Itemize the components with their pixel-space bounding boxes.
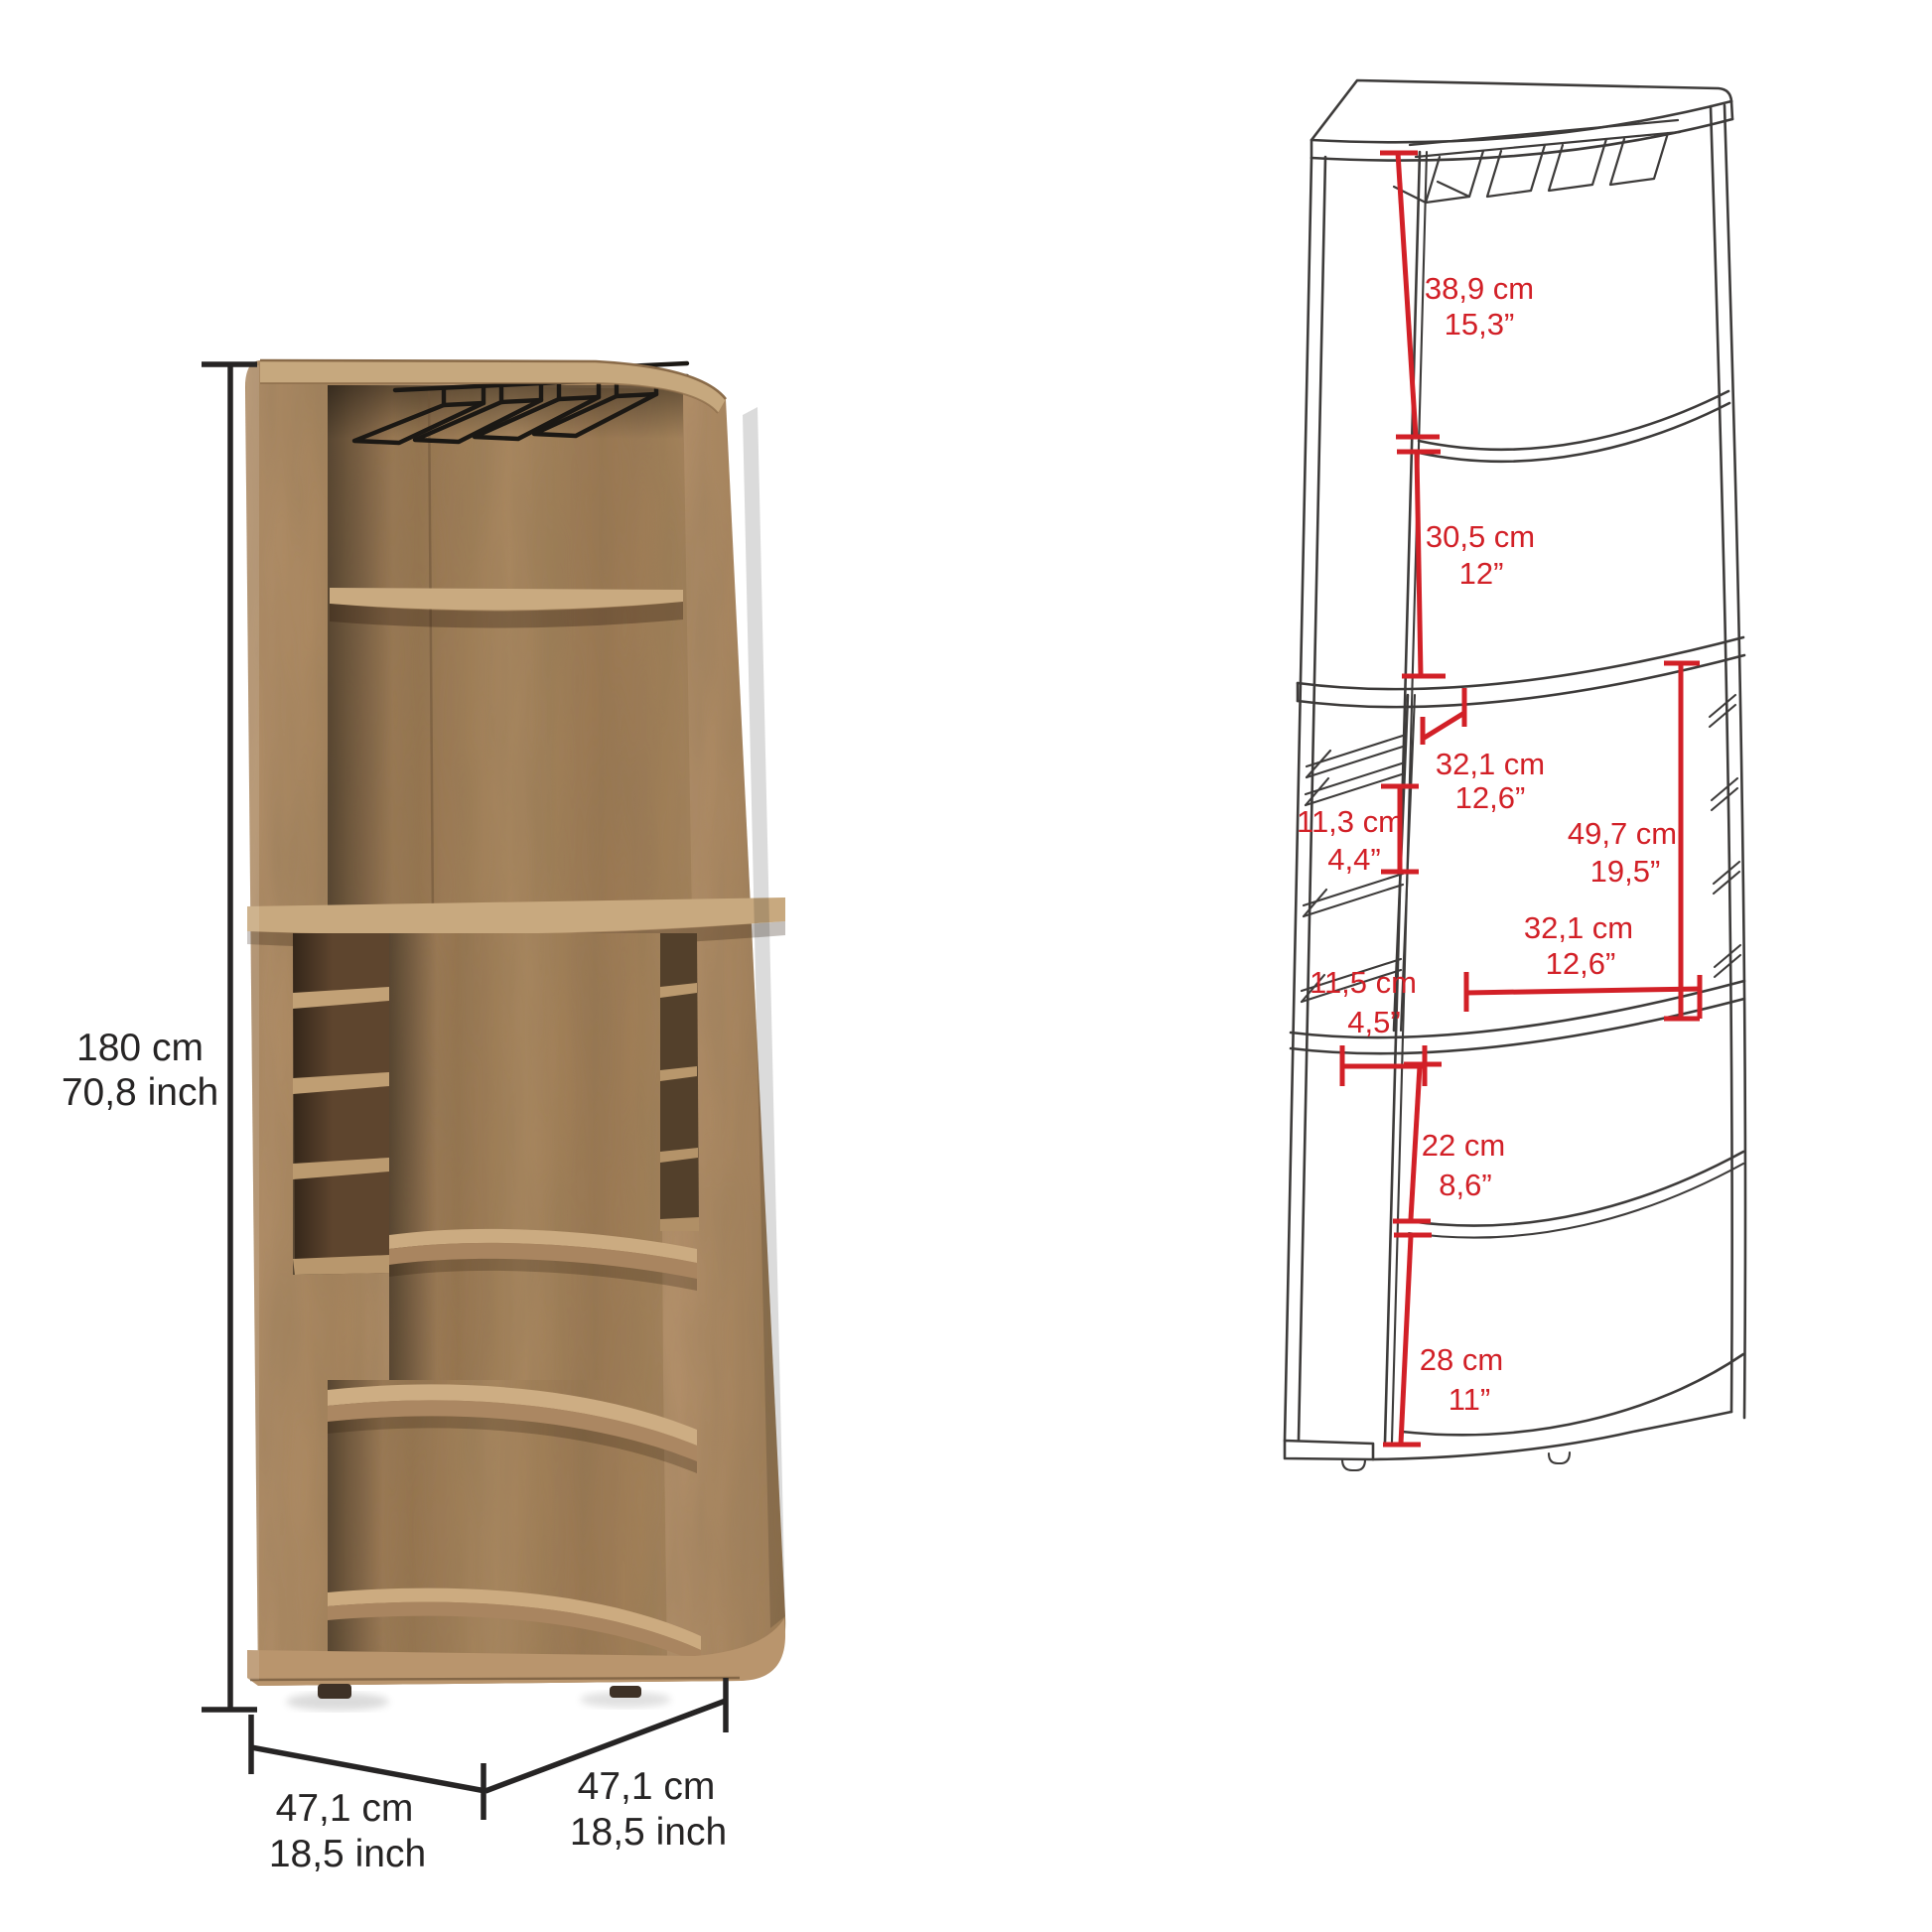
label-middle-top-depth-inch: 12,6” [1455, 780, 1526, 815]
label-middle-opening-width-inch: 12,6” [1546, 946, 1616, 981]
label-middle-opening-width-cm: 32,1 cm [1524, 910, 1633, 945]
label-cubby-height-cm: 11,3 cm [1297, 804, 1404, 839]
product-photo-figure: 180 cm 70,8 inch 47,1 cm 18,5 inch 47,1 … [62, 360, 785, 1875]
cabinet-foot [318, 1684, 351, 1699]
label-cubby-depth-cm: 11,5 cm [1310, 965, 1417, 1000]
middle-left-shadow [389, 933, 437, 1380]
label-cubby-depth-inch: 4,5” [1347, 1005, 1400, 1039]
label-cubby-height-inch: 4,4” [1327, 842, 1380, 877]
height-label-inch: 70,8 inch [62, 1071, 218, 1114]
dim-middle-top-depth [1423, 688, 1464, 745]
label-lower-shelf-cm: 22 cm [1422, 1128, 1505, 1163]
line-drawing-figure: 38,9 cm 15,3” 30,5 cm 12” 32,1 cm 12,6” … [1285, 80, 1745, 1470]
label-lower-shelf-inch: 8,6” [1439, 1168, 1491, 1202]
label-upper-opening-cm: 38,9 cm [1425, 271, 1534, 306]
label-middle-top-depth-cm: 32,1 cm [1436, 747, 1545, 781]
label-upper-shelf-cm: 30,5 cm [1426, 519, 1535, 554]
cabinet-foot [610, 1686, 641, 1698]
stemware-rack-wireframe [1394, 120, 1680, 203]
label-lower-opening-cm: 28 cm [1420, 1342, 1503, 1377]
label-middle-opening-height-inch: 19,5” [1590, 854, 1661, 889]
depth-right-label-cm: 47,1 cm [578, 1765, 716, 1808]
wireframe-right-slats [1710, 695, 1740, 977]
corner-bar-cabinet-dimension-diagram: 180 cm 70,8 inch 47,1 cm 18,5 inch 47,1 … [0, 0, 1932, 1932]
upper-cavity-left-shadow [328, 385, 393, 921]
label-upper-opening-inch: 15,3” [1445, 307, 1515, 342]
upper-shelf [330, 588, 683, 628]
label-upper-shelf-inch: 12” [1459, 556, 1504, 591]
right-bottle-cubbies [660, 933, 699, 1231]
depth-left-label-inch: 18,5 inch [269, 1833, 426, 1875]
depth-right-label-inch: 18,5 inch [570, 1811, 727, 1854]
label-middle-opening-height-cm: 49,7 cm [1568, 816, 1677, 851]
depth-left-label-cm: 47,1 cm [276, 1787, 414, 1830]
cabinet-photo [245, 360, 785, 1699]
wireframe-base [1285, 1412, 1731, 1470]
height-label-cm: 180 cm [76, 1027, 204, 1069]
label-lower-opening-inch: 11” [1449, 1382, 1491, 1417]
left-edge-highlight [246, 365, 259, 1680]
left-bottle-cubbies [293, 933, 389, 1275]
